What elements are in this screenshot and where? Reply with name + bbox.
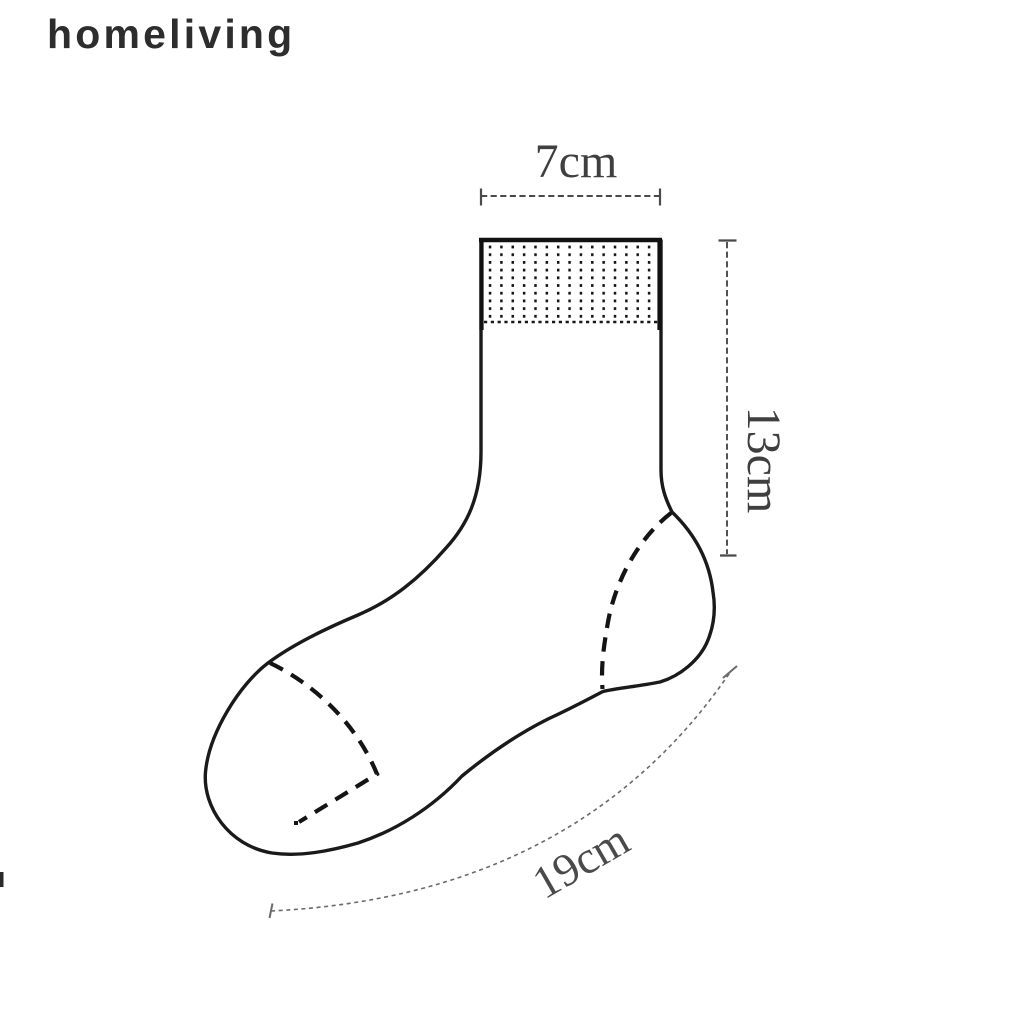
svg-text:7cm: 7cm (535, 135, 618, 188)
svg-text:13cm: 13cm (737, 407, 790, 514)
svg-text:19cm: 19cm (524, 813, 638, 908)
